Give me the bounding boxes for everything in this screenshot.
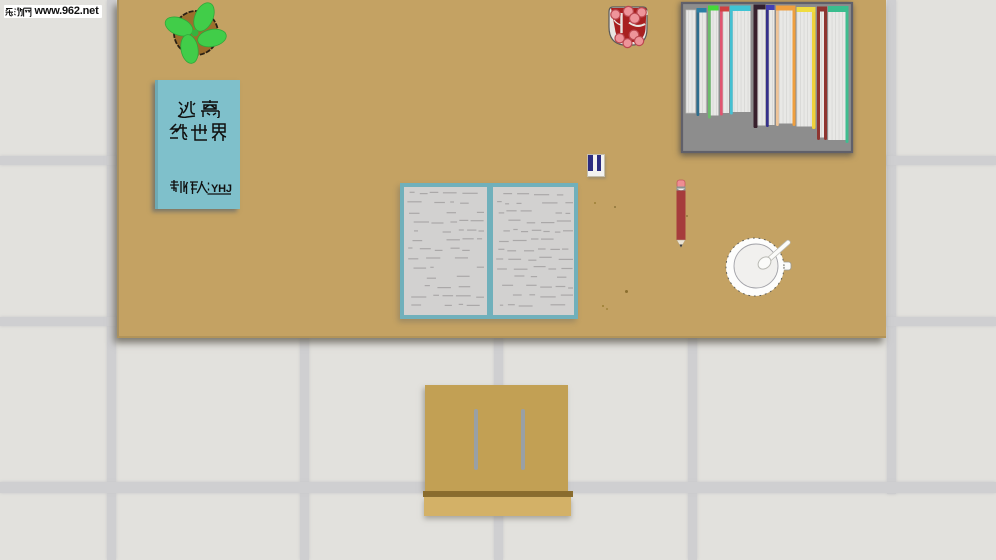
svg-text:YHJ: YHJ: [211, 183, 232, 195]
